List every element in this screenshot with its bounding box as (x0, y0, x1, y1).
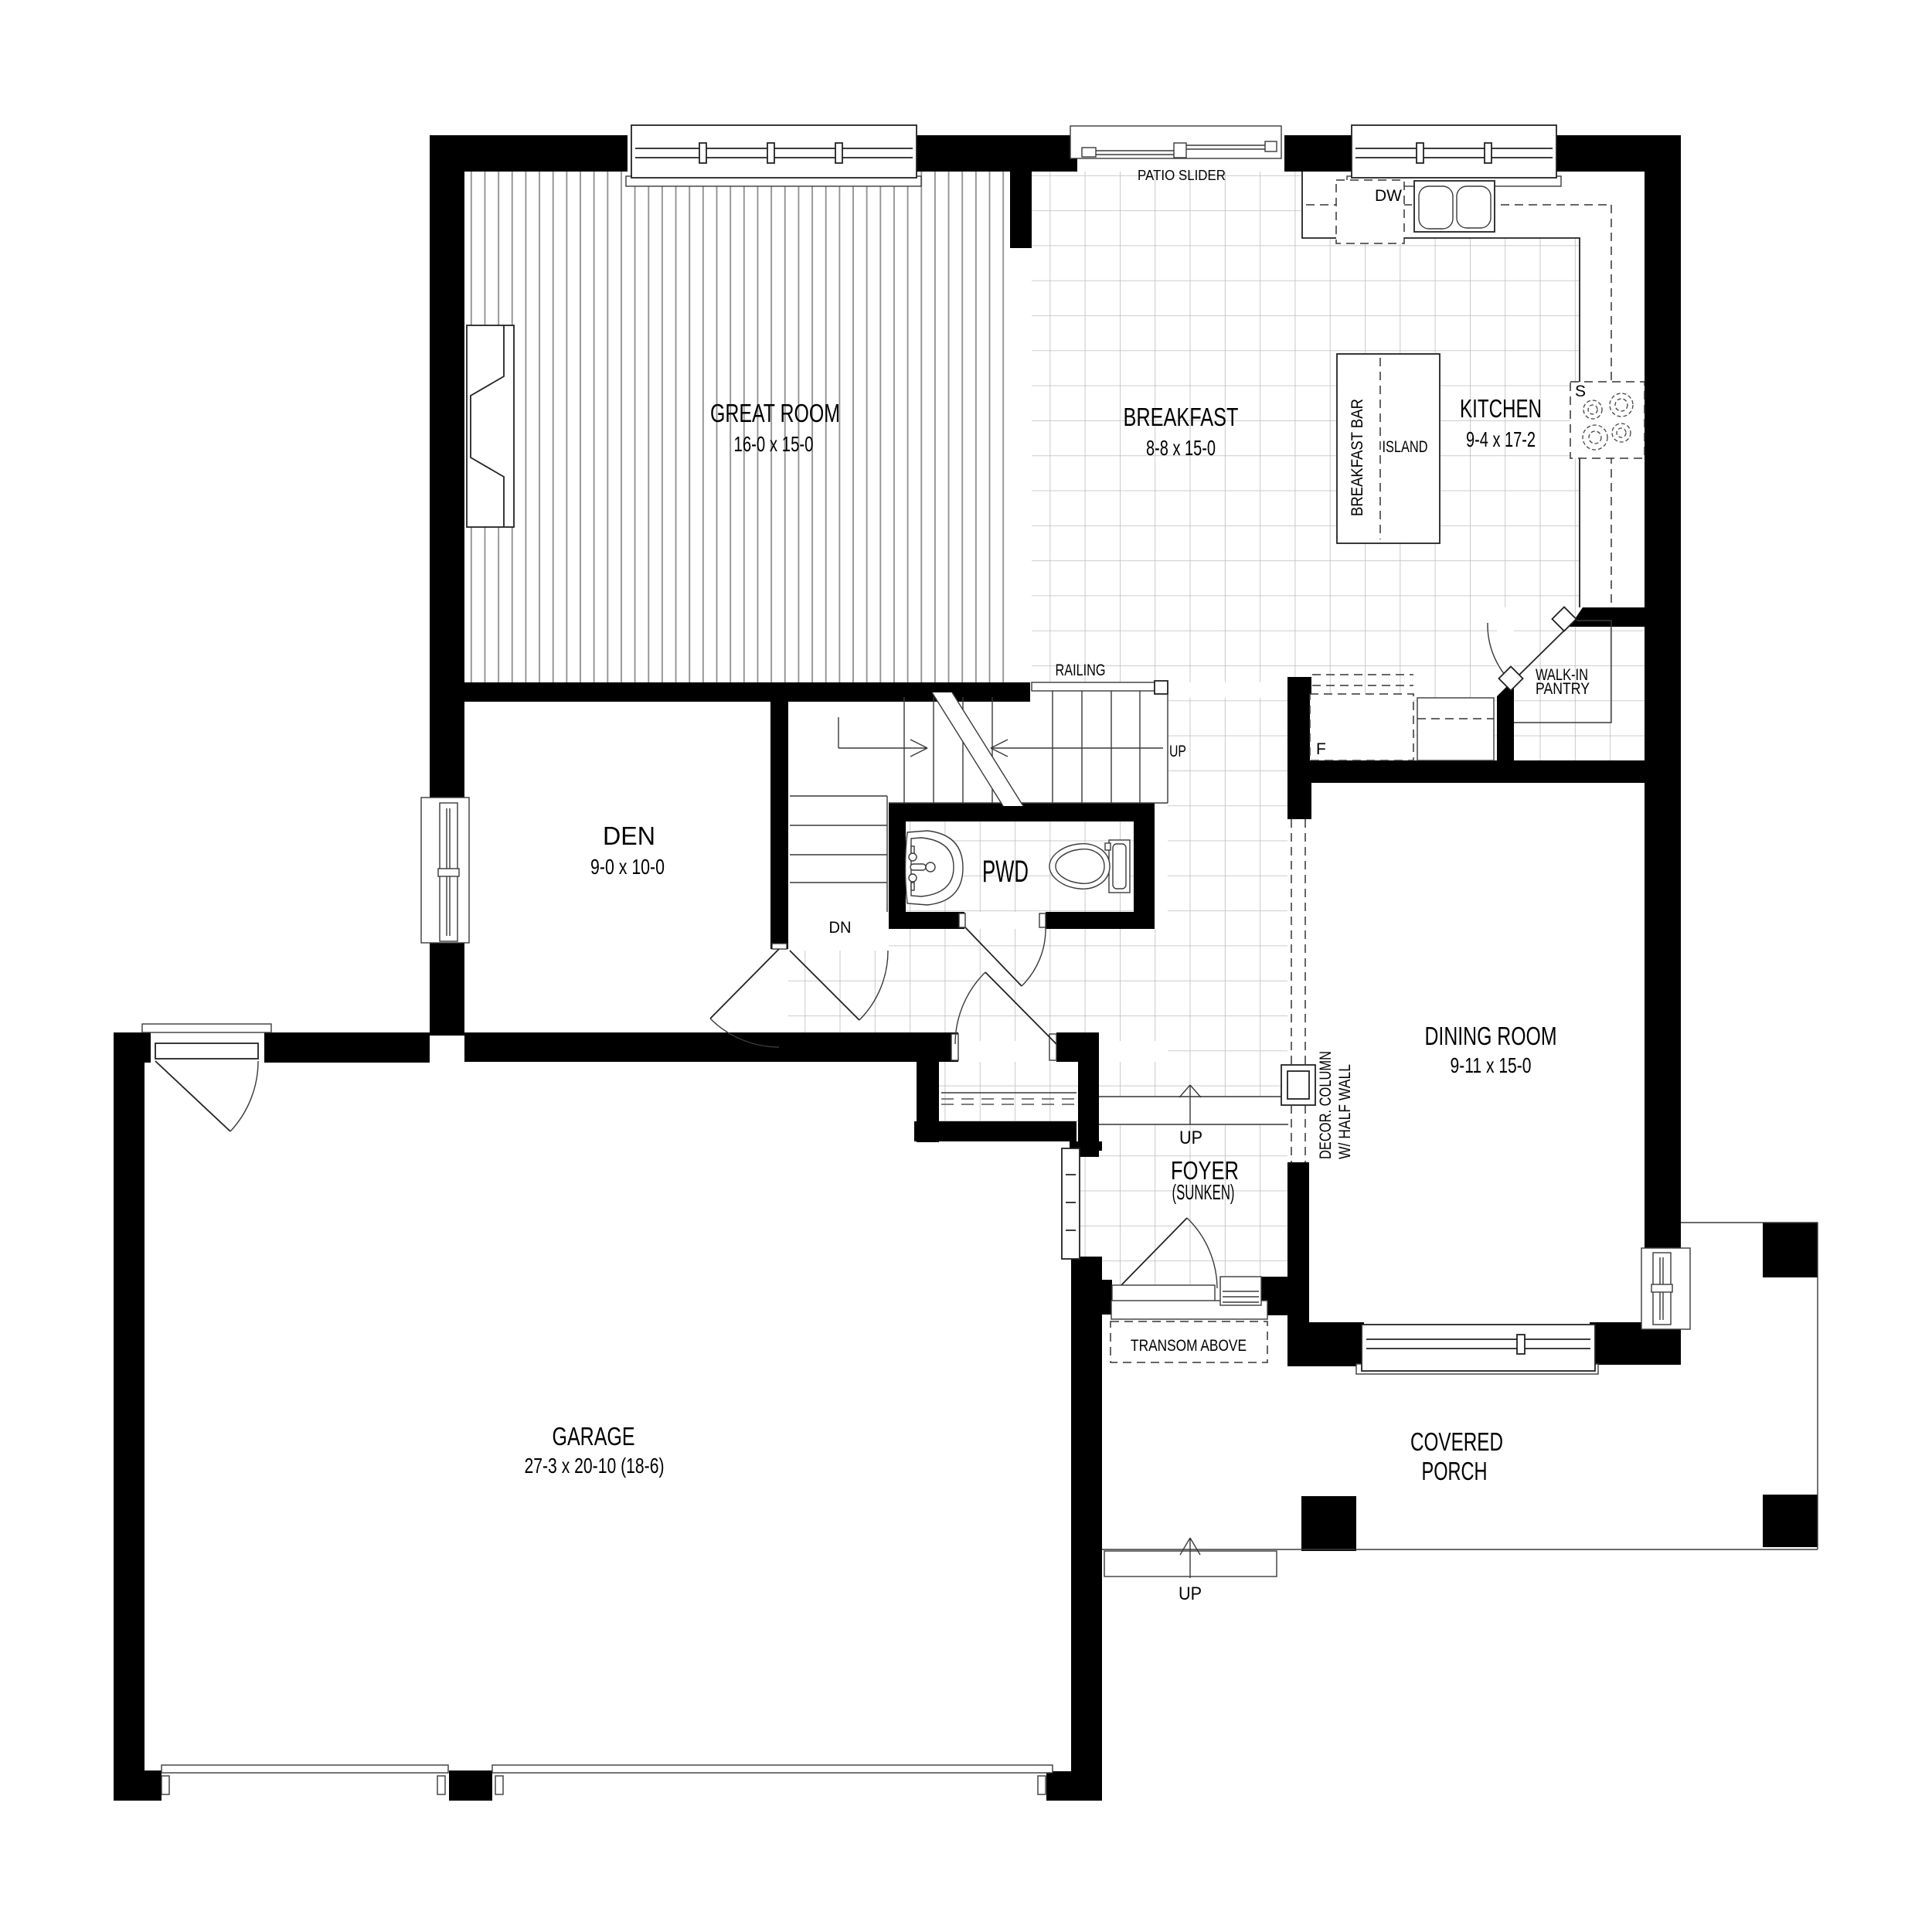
svg-text:UP: UP (1169, 743, 1186, 760)
svg-text:UP: UP (1179, 1583, 1202, 1604)
svg-text:GREAT ROOM: GREAT ROOM (710, 399, 840, 427)
svg-text:BREAKFAST: BREAKFAST (1124, 403, 1239, 431)
svg-text:PATIO SLIDER: PATIO SLIDER (1138, 168, 1226, 183)
svg-text:9-0 x 10-0: 9-0 x 10-0 (590, 855, 665, 879)
svg-text:ISLAND: ISLAND (1383, 438, 1428, 456)
svg-text:PORCH: PORCH (1422, 1457, 1488, 1485)
svg-text:RAILING: RAILING (1056, 662, 1106, 679)
svg-text:UP: UP (1179, 1128, 1202, 1148)
svg-text:KITCHEN: KITCHEN (1460, 394, 1542, 423)
svg-text:DW: DW (1375, 187, 1402, 205)
svg-text:PANTRY: PANTRY (1536, 680, 1590, 698)
svg-text:8-8 x 15-0: 8-8 x 15-0 (1146, 436, 1216, 460)
svg-text:PWD: PWD (982, 855, 1029, 889)
svg-text:9-4 x 17-2: 9-4 x 17-2 (1466, 427, 1536, 451)
svg-text:S: S (1575, 383, 1586, 400)
svg-text:27-3 x 20-10 (18-6): 27-3 x 20-10 (18-6) (525, 1454, 665, 1478)
svg-text:9-11 x 15-0: 9-11 x 15-0 (1451, 1053, 1532, 1077)
svg-text:16-0 x 15-0: 16-0 x 15-0 (734, 432, 814, 456)
svg-text:DINING ROOM: DINING ROOM (1425, 1022, 1557, 1050)
svg-text:W/ HALF WALL: W/ HALF WALL (1336, 1064, 1354, 1159)
svg-text:(SUNKEN): (SUNKEN) (1172, 1180, 1235, 1204)
svg-text:COVERED: COVERED (1410, 1427, 1503, 1456)
svg-text:GARAGE: GARAGE (553, 1422, 635, 1451)
svg-text:F: F (1316, 740, 1326, 758)
svg-text:DN: DN (829, 919, 852, 937)
svg-text:BREAKFAST BAR: BREAKFAST BAR (1349, 399, 1366, 516)
svg-text:DECOR. COLUMN: DECOR. COLUMN (1317, 1051, 1335, 1159)
svg-text:TRANSOM ABOVE: TRANSOM ABOVE (1131, 1337, 1247, 1355)
svg-text:DEN: DEN (603, 821, 655, 850)
